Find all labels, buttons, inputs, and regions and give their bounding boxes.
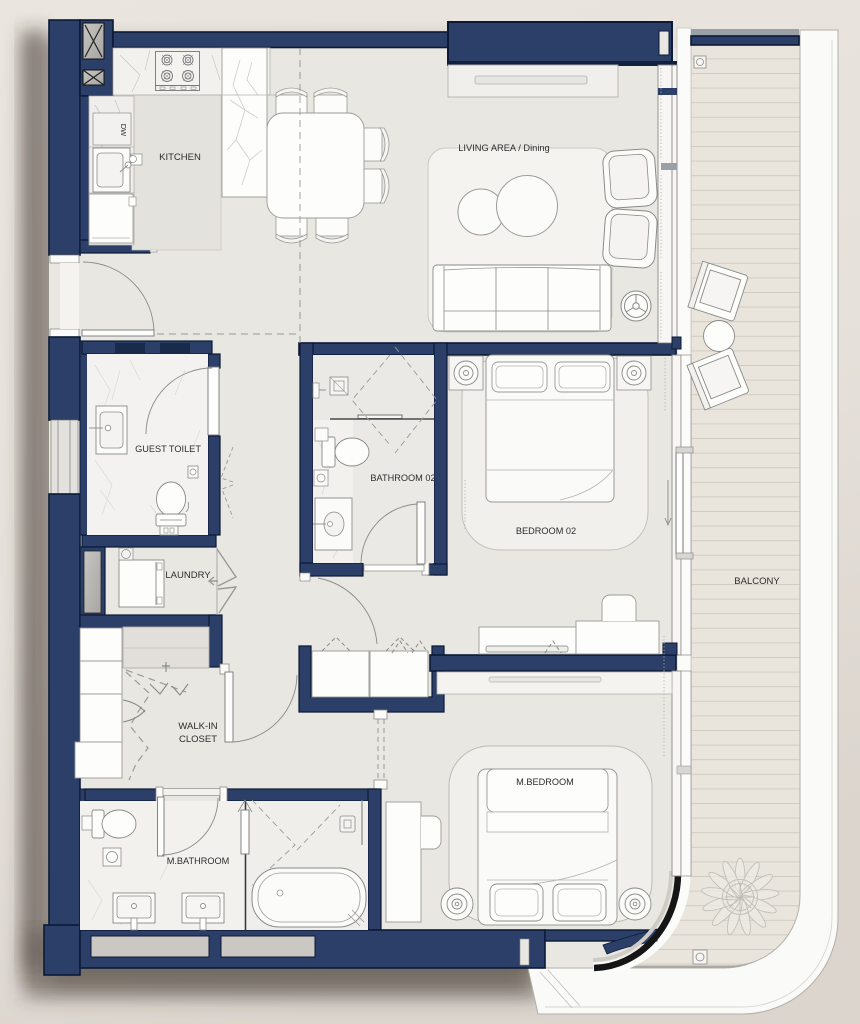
svg-text:DW: DW bbox=[119, 124, 128, 137]
svg-text:LIVING AREA / Dining: LIVING AREA / Dining bbox=[458, 143, 549, 153]
svg-text:BATHROOM 02: BATHROOM 02 bbox=[370, 473, 435, 483]
svg-text:CLOSET: CLOSET bbox=[179, 734, 217, 745]
svg-text:BEDROOM 02: BEDROOM 02 bbox=[516, 526, 576, 536]
svg-text:M.BATHROOM: M.BATHROOM bbox=[167, 856, 230, 866]
svg-text:WALK-IN: WALK-IN bbox=[178, 721, 217, 732]
svg-text:LAUNDRY: LAUNDRY bbox=[165, 570, 211, 581]
svg-text:BALCONY: BALCONY bbox=[734, 576, 780, 587]
svg-text:GUEST TOILET: GUEST TOILET bbox=[135, 444, 201, 454]
svg-text:M.BEDROOM: M.BEDROOM bbox=[516, 777, 574, 787]
svg-text:KITCHEN: KITCHEN bbox=[159, 152, 201, 163]
